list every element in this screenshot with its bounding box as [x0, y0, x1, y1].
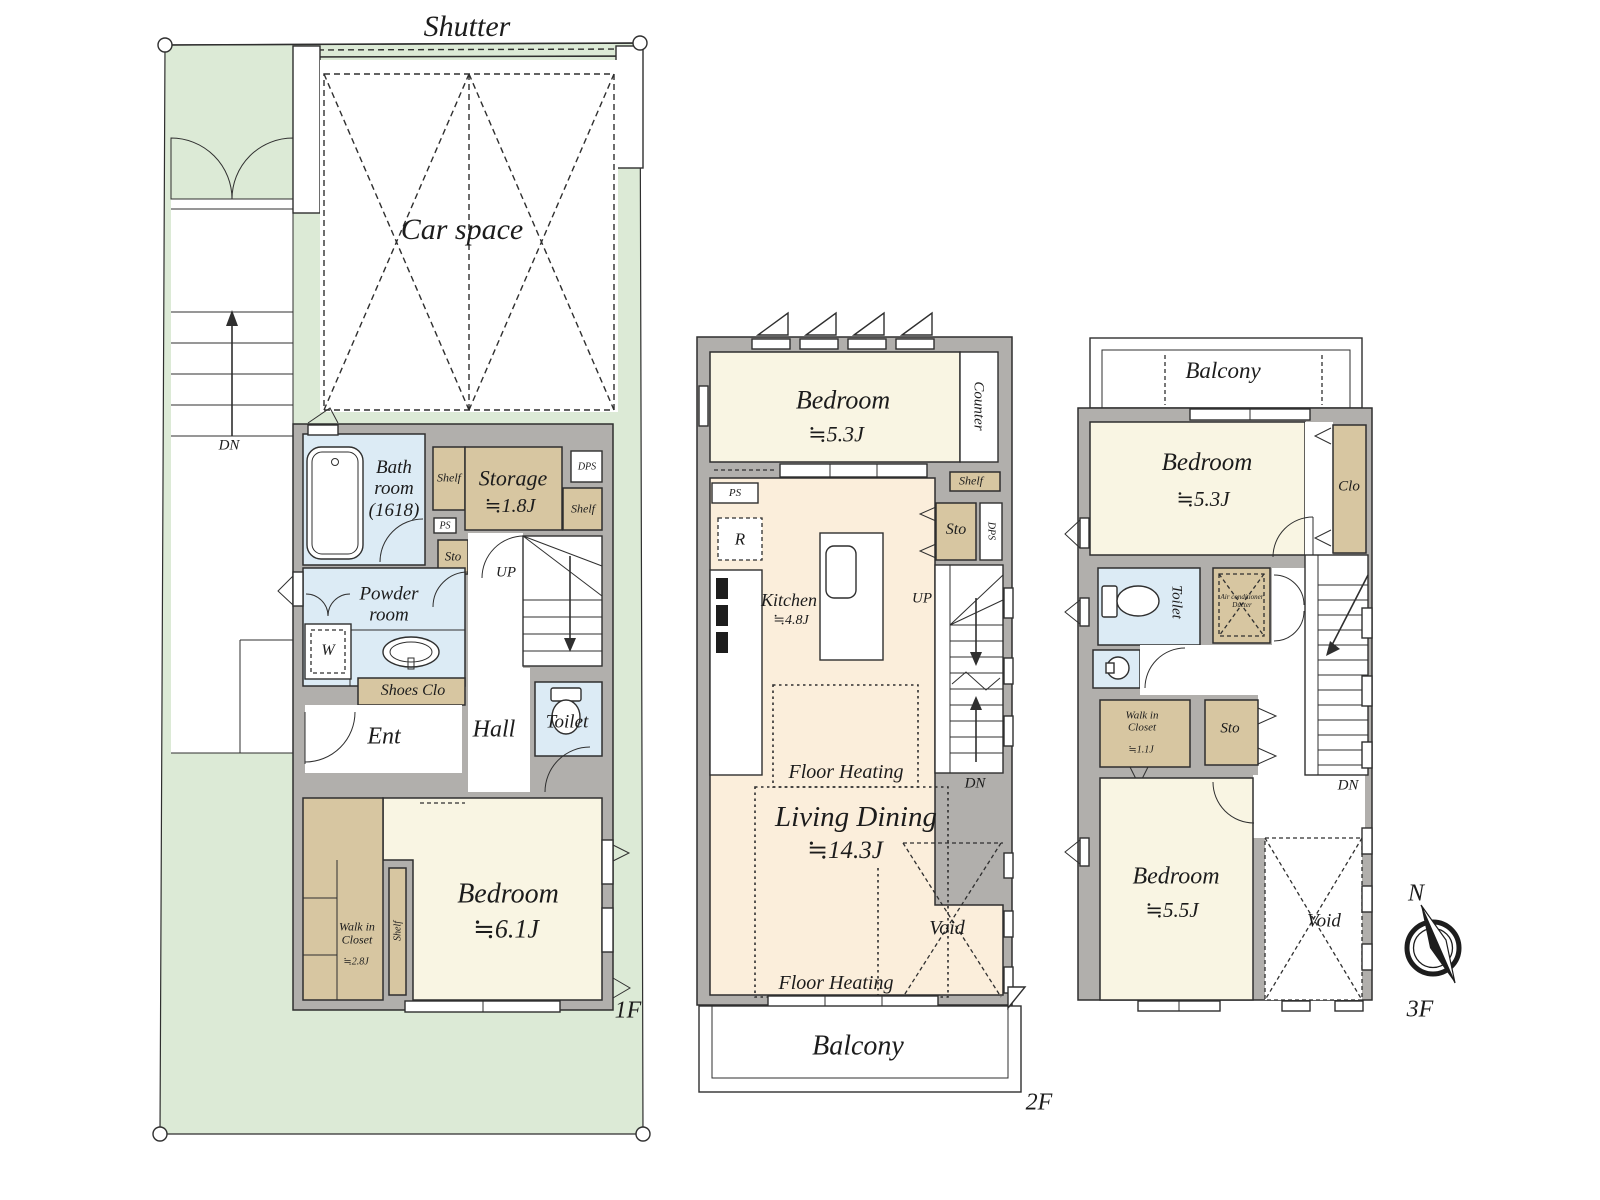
bedroom-label: Bedroom	[1132, 864, 1219, 891]
floor-3f-drawing	[1065, 338, 1459, 1011]
living-dining-label: Living Dining	[775, 801, 937, 833]
bedroom-label: Bedroom	[796, 385, 890, 414]
entrance-label: Ent	[367, 724, 400, 751]
stairs-down-label: DN	[965, 776, 986, 793]
kitchen-size-label: ≒4.8J	[773, 613, 808, 629]
walk-in-closet-size-label: ≒1.1J	[1128, 744, 1153, 755]
shoes-closet-label: Shoes Clo	[381, 682, 445, 700]
balcony-label: Balcony	[812, 1030, 904, 1061]
sto-label: Sto	[445, 550, 462, 565]
walk-in-closet-label: Walk in Closet	[1116, 710, 1168, 735]
stairs-up-label: UP	[496, 565, 516, 582]
ps-label: PS	[439, 520, 450, 531]
bedroom-size-label: ≒5.3J	[1176, 488, 1229, 512]
walk-in-closet-label: Walk in Closet	[330, 921, 385, 948]
shelf-label: Shelf	[392, 921, 403, 941]
floor-heating-label: Floor Heating	[789, 761, 904, 783]
shelf-label: Shelf	[959, 474, 983, 487]
floor-1f-label: 1F	[615, 998, 642, 1025]
sto-label: Sto	[946, 521, 966, 539]
stairs-down-label: DN	[1338, 778, 1359, 795]
storage-label: Storage	[479, 467, 547, 492]
bedroom-label: Bedroom	[1162, 449, 1253, 477]
toilet-label: Toilet	[546, 711, 589, 732]
kitchen-label: Kitchen	[761, 590, 817, 610]
void-label: Void	[929, 917, 965, 939]
bedroom-label: Bedroom	[457, 878, 559, 909]
shutter-label: Shutter	[424, 10, 511, 44]
bath-room-label: Bath room (1618)	[360, 457, 428, 521]
shelf-label: Shelf	[571, 502, 595, 515]
powder-room-label: Powder room	[347, 584, 432, 627]
compass-icon	[1407, 905, 1459, 983]
balcony-label: Balcony	[1185, 358, 1260, 384]
floor-2f-label: 2F	[1026, 1090, 1053, 1117]
dps-label: DPS	[578, 461, 596, 472]
toilet-label: Toilet	[1168, 585, 1185, 619]
compass-north-label: N	[1408, 881, 1424, 908]
car-space-label: Car space	[401, 213, 524, 247]
floor-3f-label: 3F	[1407, 997, 1434, 1024]
hall-label: Hall	[473, 717, 516, 744]
floor-plan-canvas: Shutter Car space DN Bath room (1618) Sh…	[0, 0, 1600, 1200]
living-dining-size-label: ≒14.3J	[807, 837, 883, 865]
stairs-down-label: DN	[219, 438, 240, 455]
washer-label: W	[321, 642, 334, 660]
air-conditioner-duct-label: Air conditioner Ducter	[1217, 594, 1267, 610]
walk-in-closet-size-label: ≒2.8J	[343, 956, 368, 967]
ps-label: PS	[729, 487, 741, 499]
shelf-label: Shelf	[437, 471, 461, 484]
void-label: Void	[1307, 910, 1341, 931]
floor-heating-label: Floor Heating	[779, 972, 894, 994]
sto-label: Sto	[1220, 721, 1239, 738]
closet-label: Clo	[1338, 479, 1360, 496]
bedroom-size-label: ≒5.5J	[1145, 899, 1198, 923]
bedroom-size-label: ≒6.1J	[473, 914, 539, 943]
counter-label: Counter	[970, 381, 987, 430]
refrigerator-label: R	[735, 529, 745, 548]
stairs-up-label: UP	[912, 591, 932, 608]
dps-label: DPS	[985, 522, 996, 540]
storage-size-label: ≒1.8J	[485, 495, 536, 517]
bedroom-size-label: ≒5.3J	[808, 423, 864, 448]
